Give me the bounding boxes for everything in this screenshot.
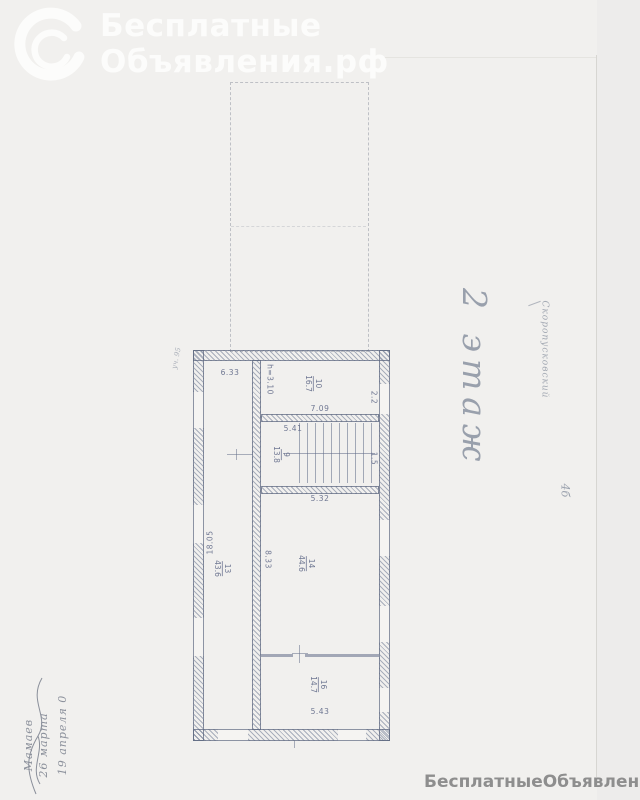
window-left [193,618,204,656]
wall-interior-a [261,414,379,422]
street-name-handwriting: Скоропусковский [537,295,550,405]
dim-left-height: 18.05 [206,526,215,560]
room-label-9: 9 13.8 [272,446,291,463]
window-right [379,606,390,642]
room-number: 9 [281,449,291,460]
wall-interior-b [261,486,379,494]
scanned-floorplan-page: Бесплатные Объявления.рф 6.33 h=3.10 2.2… [0,0,640,800]
room-area: 44.6 [297,555,306,572]
room-area: 13.8 [272,446,281,463]
dim-right-mid: 1.5 [370,449,379,469]
witness-line [227,454,253,455]
watermark-brand-line1: Бесплатные [100,8,322,44]
staircase-direction-line [283,453,375,454]
watermark-bottom: БесплатныеОбъявления.рф [424,772,640,792]
dim-bottom-room: 5.43 [298,707,342,716]
free-ads-logo-icon [4,0,100,96]
house-number-handwriting: 4б [559,484,572,504]
corner-note-handwriting: уч. 95 [170,327,188,370]
paper-edge-line [363,57,596,58]
dim-right-top: 2.2 [370,388,379,408]
room-area: 16.7 [304,375,313,392]
window-right [379,688,390,712]
signature-flourish [18,672,62,800]
witness-tick [236,449,237,460]
window-bottom [218,729,248,741]
room-number: 10 [313,376,323,392]
room-area: 14.7 [309,676,318,693]
witness-tick [294,741,295,748]
dim-ceiling-height: h=3.10 [266,362,275,398]
room-label-14: 14 44.6 [297,555,316,572]
wall-interior-vertical [252,360,261,730]
room-number: 13 [222,561,232,577]
dim-top-left-room: 6.33 [210,368,250,377]
room-label-10: 10 16.7 [304,375,323,392]
dim-mid-height: 8.33 [264,545,273,575]
window-left [193,392,204,428]
room-label-13: 13 43.6 [213,560,232,577]
window-right [379,384,390,414]
door-tick [292,653,308,654]
floor-label-handwriting: 2 этаж [452,288,494,458]
dashed-projection-outline [230,82,369,352]
dashed-projection-line [231,226,366,227]
paper-margin [597,0,640,800]
window-right [379,520,390,556]
partition-segment [261,654,293,657]
room-area: 43.6 [213,560,222,577]
dim-stair-top: 5.41 [278,424,308,433]
dim-room10-width: 7.09 [300,404,340,413]
dim-stair-bottom: 5.32 [298,494,342,503]
window-bottom [338,729,366,741]
room-number: 16 [318,677,328,693]
wall-top [193,350,390,361]
room-label-16: 16 14.7 [309,676,328,693]
partition-segment [305,654,379,657]
window-left [193,505,204,543]
door-tick [299,645,300,663]
paper-edge-line [596,55,597,777]
watermark-brand-line2: Объявления.рф [100,44,389,80]
room-number: 14 [306,556,316,572]
